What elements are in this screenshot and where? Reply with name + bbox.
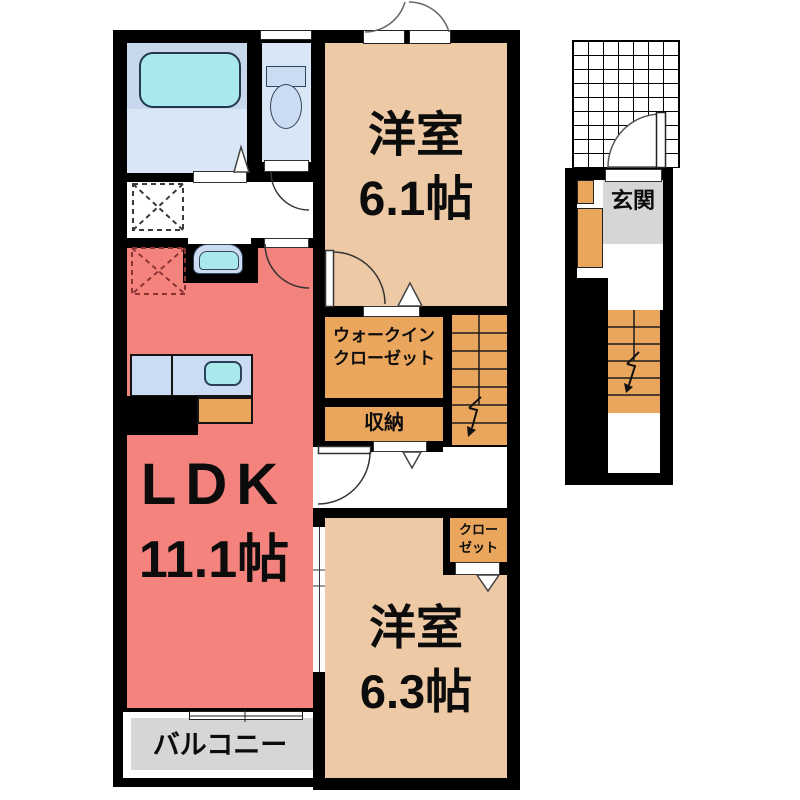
ldk-name: LDK [141, 452, 287, 517]
toilet-icon [270, 84, 302, 129]
balcony-label: バルコニー [125, 728, 315, 763]
wic-line1: ウォークイン [333, 326, 435, 345]
kitchen-partition [127, 396, 198, 435]
closet-line2: ゼット [459, 540, 498, 555]
ldk-door-sill [264, 238, 309, 248]
bathroom-floor [127, 109, 247, 173]
staircase-annex [608, 310, 660, 413]
storage-name: 収納 [364, 412, 404, 434]
room2-size: 6.3帖 [360, 665, 472, 718]
storage-label: 収納 [325, 410, 443, 436]
balcony-window [189, 711, 303, 720]
room1-window-right [409, 30, 451, 44]
closet-line1: クロー [459, 522, 498, 537]
bathroom-door-sill [193, 171, 247, 183]
toilet-window [260, 30, 312, 40]
room1-window-left [363, 30, 405, 44]
entrance-name: 玄関 [611, 188, 655, 213]
kitchen-sink [204, 361, 242, 386]
entrance-door-sill [605, 169, 662, 182]
ldk-sliding-door [313, 527, 325, 672]
closet-door-sill [455, 562, 500, 575]
wic-line2: クローゼット [333, 349, 435, 368]
entrance-label: 玄関 [603, 187, 663, 216]
kitchen-counter-divider [171, 356, 173, 395]
porch-hatch [572, 40, 680, 168]
room1-size: 6.1帖 [359, 173, 474, 226]
window-casement-arcs [365, 2, 449, 32]
closet-label: クロー ゼット [448, 521, 509, 557]
room1-name: 洋室 [368, 109, 464, 162]
floorplan: 洋室 6.1帖 ウォークイン クローゼット 収納 LDK 11.1帖 クロー ゼ… [0, 0, 800, 800]
shoe-cabinet-small [577, 180, 594, 204]
toilet-door-sill [264, 160, 309, 172]
annex-wall-block [565, 278, 608, 318]
shoe-cabinet-tall [577, 208, 603, 268]
room2-name: 洋室 [369, 601, 463, 654]
ldk-label: LDK 11.1帖 [118, 446, 310, 596]
balcony-name: バルコニー [153, 730, 287, 760]
room1-label: 洋室 6.1帖 [325, 104, 507, 232]
storage-door-sill [373, 441, 427, 452]
staircase-main [452, 315, 507, 445]
room1-window-mullion [405, 30, 409, 44]
washroom [127, 182, 313, 238]
room2-label: 洋室 6.3帖 [325, 596, 507, 724]
wic-door-sill [363, 306, 420, 317]
ldk-size: 11.1帖 [139, 531, 289, 589]
wic-label: ウォークイン クローゼット [325, 324, 443, 370]
hallway [313, 447, 507, 508]
kitchen-cabinet [197, 397, 253, 424]
bathtub [139, 52, 241, 108]
washbasin-bowl [199, 251, 239, 270]
